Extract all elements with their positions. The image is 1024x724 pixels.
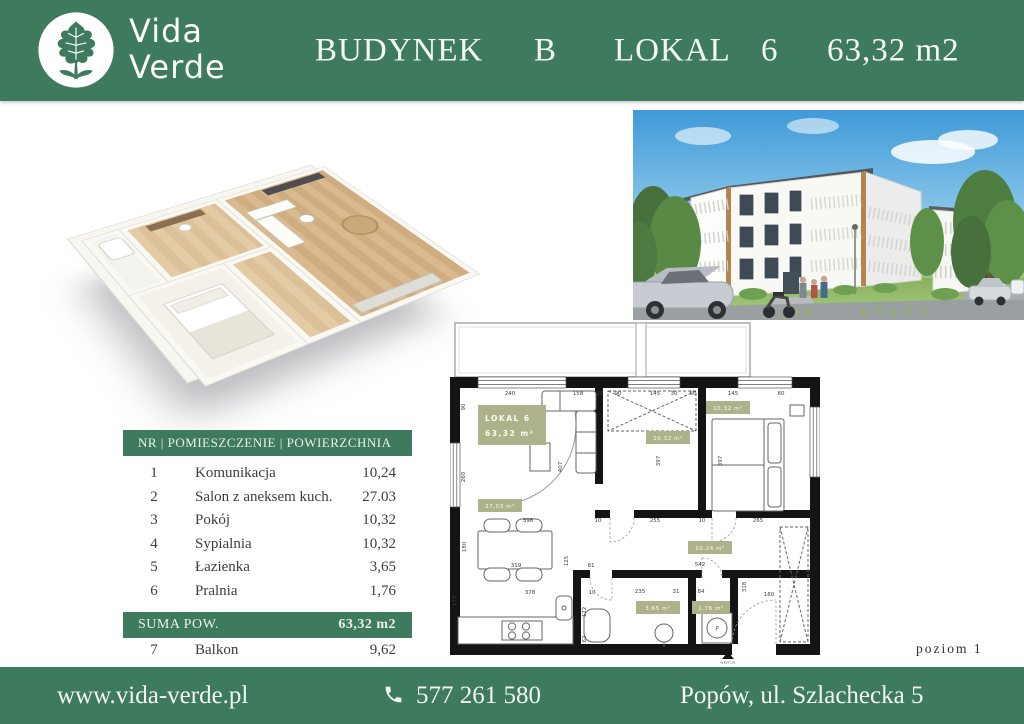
flyer-page: { "theme":{"green":"#3d7a5e","olive":"#a… [0,0,1024,724]
desk-3d [145,209,206,231]
dimension-number: 542 [695,562,706,568]
row-area: 10,32 [362,536,396,553]
dimension-number: 125 [564,555,570,566]
row-area: 9,62 [370,642,396,659]
row-area: 27.03 [362,489,396,506]
table-row: 1 Komunikacja 10,24 [123,465,412,489]
dimension-number: 10 [589,590,596,596]
logo-line2: Verde [129,49,226,85]
chair-3d [176,223,195,233]
dimension-number: 397 [718,455,724,466]
tv-unit-3d [262,173,326,196]
room-table: NR | POMIESZCZENIE | POWIERZCHNIA 1 Komu… [123,430,412,665]
dimension-number: 60 [778,391,785,397]
oak-leaf-logo-icon [36,10,116,90]
dimension-number: 62 [582,636,588,643]
row-nr: 3 [143,512,165,529]
dimension-number: 398 [523,518,534,524]
balcony [455,323,750,377]
dimension-number: 10 [597,391,604,397]
kitchen-counter-3d [352,273,444,314]
dimension-number: 122 [582,607,588,618]
area-label-pokoj: 10,32 m² [653,435,683,442]
dimension-number: 319 [511,563,522,569]
title-building-value: B [534,32,557,69]
dimension-number: 145 [650,391,661,397]
dimension-number: 90 [461,403,467,410]
row-area: 3,65 [370,559,396,576]
dimension-number: 10 [595,518,602,524]
dimension-number: 235 [635,589,646,595]
dining-set [478,519,552,581]
dimension-number: 158 [573,391,584,397]
floorplan-3d-render [90,115,430,405]
area-label-komunikacja: 10,24 m² [695,545,725,552]
row-name: Pralnia [195,583,238,600]
dimension-number: 175 [452,595,458,606]
dimension-number: 30 [671,391,678,397]
table-row: 2 Salon z aneksem kuch. 27.03 [123,489,412,513]
bed-pillows-3d [170,287,229,314]
bathroom-fixtures [584,609,673,647]
lamp-head [852,224,858,230]
table-rows: 1 Komunikacja 10,24 2 Salon z aneksem ku… [123,456,412,607]
dimension-number: 90 [615,391,622,397]
dimension-number: 31 [673,589,680,595]
table-header: NR | POMIESZCZENIE | POWIERZCHNIA [123,430,412,456]
row-name: Łazienka [195,559,250,576]
footer-bar: www.vida-verde.pl 577 261 580 Popów, ul.… [0,667,1024,724]
unit-label-line1: LOKAL 6 [485,414,531,423]
logo-wordmark: Vida Verde [129,13,226,85]
coffee-table-3d [296,213,318,225]
wardrobe-entry [780,527,808,642]
area-label-sypialnia: 10,32 m² [713,405,743,412]
row-nr: 1 [143,465,165,482]
row-area: 1,76 [370,583,396,600]
row-name: Balkon [195,642,238,659]
dimension-number: 84 [698,589,705,595]
phone-link[interactable]: 577 261 580 [383,682,541,710]
unit-label-line2: 63,32 m² [485,429,534,438]
dimension-number: 260 [461,471,467,482]
header-bar: Vida Verde BUDYNEK B LOKAL 6 63,32 m2 [0,0,1024,101]
door-swings [590,518,776,644]
dimension-number: 397 [656,455,662,466]
table-row: 5 Łazienka 3,65 [123,559,412,583]
room-labels: LOKAL 6 63,32 m² 27,03 m² 10,32 m² 10,32… [478,401,750,614]
row-nr: 7 [143,642,165,659]
dimension-number: 180 [462,541,468,552]
dimension-number: 60 [690,391,697,397]
title-building-label: BUDYNEK [315,32,483,69]
row-name: Sypialnia [195,536,252,553]
table-row: 4 Sypialnia 10,32 [123,536,412,560]
row-area: 10,24 [362,465,396,482]
bed-blanket-3d [190,310,273,358]
washer-letter: P [715,626,719,633]
floorplan-2d: P LOKAL 6 63,32 m² 27,03 m² 10,32 m² 10,… [450,315,820,665]
dimension-number: 378 [525,590,536,596]
people [800,276,828,298]
entrance-label: WEJŚCIE [720,660,735,665]
building-exterior-render [633,110,1024,320]
phone-number: 577 261 580 [416,682,541,709]
title-unit-value: 6 [761,32,779,69]
sum-label: SUMA POW. [138,617,219,632]
sum-value: 63,32 m2 [338,612,396,638]
dimension-number: 180 [764,592,775,598]
area-label-lazienka: 3,65 m² [645,605,671,612]
title-area: 63,32 m2 [827,32,960,69]
dimension-number: 81 [588,563,595,569]
title-unit-label: LOKAL [614,32,731,69]
table-row: 3 Pokój 10,32 [123,512,412,536]
dimension-number: 255 [650,518,661,524]
row-area: 10,32 [362,512,396,529]
table-row: 6 Pralnia 1,76 [123,583,412,607]
dimension-number: 145 [728,391,739,397]
dimension-number: 240 [505,391,516,397]
row-nr: 4 [143,536,165,553]
dimension-number: 10 [699,518,706,524]
floorplan-3d-body [68,165,462,382]
row-name: Salon z aneksem kuch. [195,489,332,506]
logo-line1: Vida [129,13,226,49]
level-label: poziom 1 [916,641,983,657]
row-nr: 6 [143,583,165,600]
dining-table-3d [334,212,386,239]
coffee-table [530,443,550,471]
row-name: Komunikacja [195,465,276,482]
kitchen [458,596,573,644]
area-label-salon: 27,03 m² [485,503,515,510]
row-nr: 2 [143,489,165,506]
wardrobe-pokoj [608,391,696,431]
area-label-pralnia: 1,76 m² [698,605,724,612]
table-row-balkon: 7 Balkon 9,62 [123,642,412,666]
website-link[interactable]: www.vida-verde.pl [57,682,248,710]
row-name: Pokój [195,512,230,529]
dimension-number: 265 [753,518,764,524]
bed [712,405,804,511]
dimension-number: 407 [558,461,564,472]
table-sum-bar: SUMA POW. 63,32 m2 [123,612,412,638]
address-text: Popów, ul. Szlachecka 5 [680,682,923,710]
dimension-number: 318 [742,581,748,592]
phone-icon [383,684,404,705]
row-nr: 5 [143,559,165,576]
unit-label-box [478,405,546,445]
